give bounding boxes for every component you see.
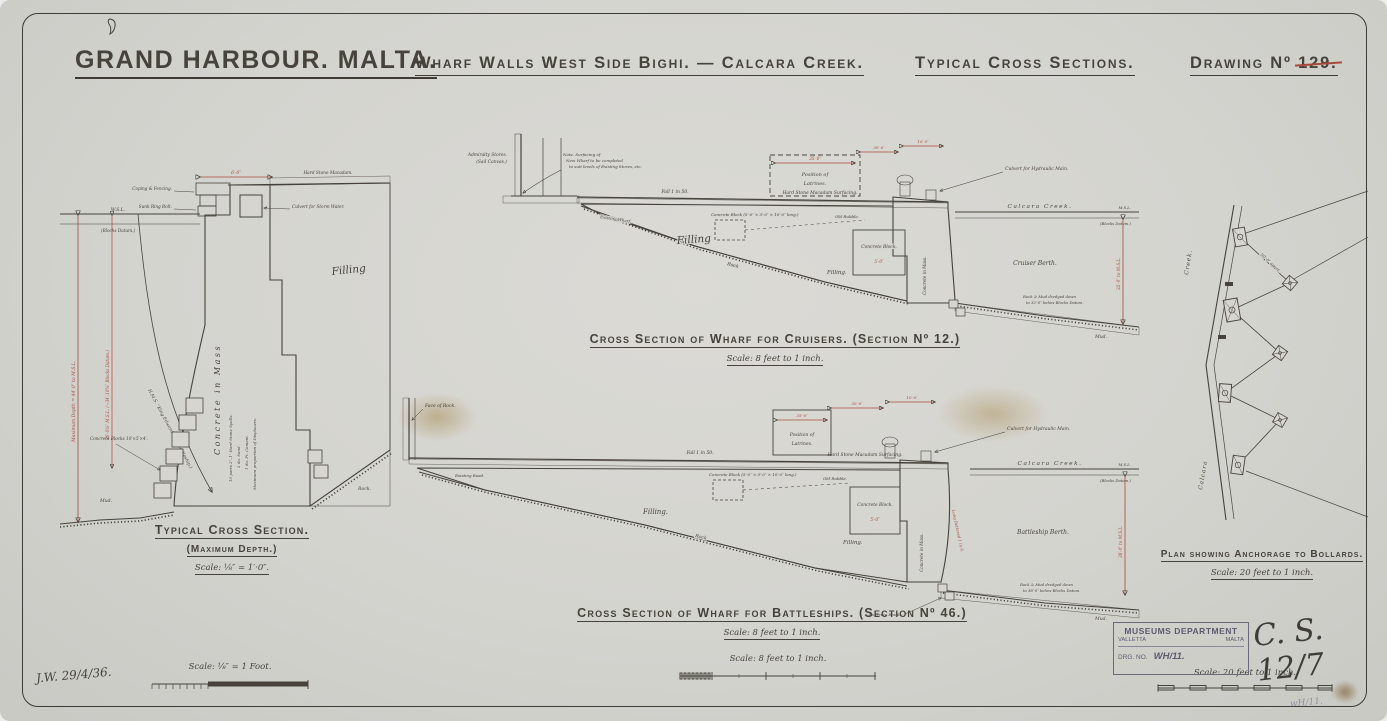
battleships-latrines-dim: 35′·0″ [796,413,808,418]
battleships-msl-label: M.S.L. [1118,462,1132,467]
battleships-wall-vert: Concrete in Mass. [919,533,924,572]
battleships-latrines-label1: Position of [789,432,816,438]
plan-bollard-2 [1223,298,1241,322]
typical-culvert-label: Culvert for Storm Water. [292,204,344,209]
cruisers-old-rubble: Old Rubble. [835,214,859,219]
plan-caption-text: Plan showing Anchorage to Bollards. [1161,549,1364,562]
battleships-berth-label: Battleship Berth. [1016,529,1069,536]
typical-datum-label: (Blocks Datum.) [101,228,135,233]
typical-scale-text: Scale: ⅛″ = 1′·0″. [195,563,269,575]
stamp-drg-value: WH/11. [1154,651,1185,662]
cruisers-dredge1: Rock & Mud dredged down [1022,294,1077,299]
typical-rock-label: Rock. [357,486,372,492]
scalebar-middle [678,668,878,682]
cruisers-wall-vert: Concrete in Mass. [922,256,927,295]
battleships-fall-label: Fall 1 in 50. [685,450,714,456]
cruisers-scale-text: Scale: 8 feet to 1 inch. [727,354,824,366]
typical-ringbolt-label: Sunk Ring Bolt. [139,204,172,209]
battleships-dim-10: 10′·0″ [906,395,918,400]
typical-mid-dim: 36′·0⅜″ M.S.L. (−34′·10⅜″ Blocks Datum.) [105,350,110,440]
cruisers-berth-label: Cruiser Berth. [1013,260,1057,267]
cruisers-block-dim: 5′·0″ [874,259,884,264]
plan-bollard-3 [1218,384,1231,403]
cruisers-culvert-label: Culvert for Hydraulic Main. [1005,166,1069,172]
scalebar-right [1156,682,1334,694]
battleships-geometry: Face of Rock. Existing Road. Fall 1 in 5… [403,395,1139,622]
drawing-number: Drawing Nº 129. [1190,54,1338,76]
plan-creek-label: Creek. [1184,249,1194,275]
cruisers-datum-label: (Blocks Datum.) [1100,221,1131,226]
battleships-caption-text: Cross Section of Wharf for Battleships. … [577,606,967,622]
cruisers-caption-text: Cross Section of Wharf for Cruisers. (Se… [590,332,961,348]
battleships-mud-label: Mud. [1094,616,1108,622]
cruisers-macadam-label: Hard Stone Macadam Surfacing. [781,190,858,196]
typical-geometry: 6′·0″ Hard Stone Macadam. Filling Coping… [60,170,392,527]
scalebar-left [150,676,310,690]
battleships-culvert [921,451,931,461]
cruisers-fall-label: Fall 1 in 50. [660,189,689,195]
drawing-number-value: 129. [1298,54,1337,73]
subtitle-location: Wharf Walls West Side Bighi. — Calcara C… [415,54,864,76]
typical-caption: Typical Cross Section. (Maximum Depth.) … [122,521,342,575]
battleships-dim-30: 30′·0″ [851,401,863,406]
battleships-scale-text: Scale: 8 feet to 1 inch. [724,628,821,640]
stamp-location-row: VALLETTA MALTA [1118,637,1244,647]
stamp-country: MALTA [1226,637,1244,643]
reference-number: C. S. 12/7 [1252,605,1387,688]
subtitle-sections: Typical Cross Sections. [915,54,1135,76]
stamp-department: MUSEUMS DEPARTMENT [1118,626,1244,636]
cruisers-stores-label1: Admiralty Stores. [467,153,507,158]
stamp-drg-label: DRG. NO. [1118,654,1148,661]
battleships-dredge1: Rock & Mud dredged down [1019,582,1074,587]
cruisers-latrines-label1: Position of [801,172,830,178]
plan-caption: Plan showing Anchorage to Bollards. Scal… [1152,544,1372,580]
battleships-dredge2: to 38′·0″ below Blocks Datum. [1023,588,1081,593]
battleships-latrines-label2: Latrines. [791,441,813,447]
cruisers-mud-label: Mud. [1094,334,1108,340]
battleships-caption: Cross Section of Wharf for Battleships. … [522,604,1022,640]
battleships-culvert-label: Culvert for Hydraulic Main. [1007,426,1071,432]
cruisers-bollard [897,175,913,196]
battleships-batter-label: Long Battered 1 in 8. [951,508,965,552]
cruisers-depth-dim: 32′·0″ to M.S.L. [1116,258,1121,291]
scalebar-left-label: Scale: ⅛″ = 1 Foot. [150,662,310,672]
typical-filling-label: Filling [330,262,367,278]
plan-scale-text: Scale: 20 feet to 1 inch. [1211,568,1313,580]
cruisers-dim-30: 30′·0″ [873,145,885,150]
cruisers-note-line1: Note. Surfacing of [562,152,602,157]
typical-mud-label: Mud. [99,498,113,504]
battleships-face-rock-label: Face of Rock. [424,403,456,409]
signature: J.W. 29/4/36. [36,665,113,686]
typical-spec2: 2 do. Sand. [236,445,241,469]
typical-spec1: 10 parts 2″–1″ Hard Stone Spalls. [228,414,233,482]
cruisers-stores-label2: (Sail Canvas.) [476,160,507,165]
cruisers-section-drawing: Admiralty Stores. (Sail Canvas.) Note. S… [395,130,1143,345]
typical-depth-dim: Maximum Depth = 44′·0″ to M.S.L. [71,360,77,443]
drawing-number-label: Drawing Nº [1190,54,1298,72]
battleships-filling2: Filling. [842,540,863,546]
typical-top-dim: 6′·0″ [231,170,241,176]
cruisers-block-note: Concrete Block (5′·0″ × 5′·0″ × 10′·0″ l… [711,212,799,217]
typical-caption-text: Typical Cross Section. [155,523,309,539]
battleships-depth-dim: 38′·0″ to M.S.L. [1118,526,1123,559]
battleships-caption-section: (Section Nº 46.) [859,606,967,620]
cruisers-creek-label: Calcara Creek. [1008,204,1073,210]
cruisers-latrines-dim: 35′·0″ [809,156,821,161]
battleships-filling1: Filling. [642,508,668,516]
cruisers-existing-label: Existing Wharf. [599,214,632,224]
cruisers-rock-slope: Rock [726,261,740,270]
typical-spec3: 1 do. Pt. Cement. [244,435,249,470]
cruisers-msl-label: M.S.L. [1118,205,1132,210]
cruisers-caption-main: Cross Section of Wharf for Cruisers. [590,332,848,346]
cruisers-latrines-label2: Latrines. [803,181,827,187]
battleships-macadam-label: Hard Stone Macadam Surfacing. [826,452,903,458]
plan-bollard-4 [1231,455,1245,474]
cruisers-caption-section: (Section Nº 12.) [853,332,961,346]
battleships-caption-main: Cross Section of Wharf for Battleships. [577,606,854,620]
cruisers-geometry: Admiralty Stores. (Sail Canvas.) Note. S… [467,134,1139,340]
cruisers-note-line3: to suit levels of Existing Stores, etc. [569,164,642,169]
battleships-block-note: Concrete Block (5′·0″ × 5′·0″ × 10′·0″ l… [709,472,797,477]
cruisers-concrete-block-label: Concrete Block. [861,245,897,250]
battleships-block-dim: 5′·0″ [870,517,880,522]
plan-calcara-label: Calcara [1198,460,1209,490]
drawing-sheet: GRAND HARBOUR. MALTA. Wharf Walls West S… [0,0,1387,721]
page-title: GRAND HARBOUR. MALTA. [75,46,437,79]
typical-section-drawing: 6′·0″ Hard Stone Macadam. Filling Coping… [60,150,395,570]
typical-subcaption-text: (Maximum Depth.) [187,544,278,557]
plan-tie-dim: 50′·0″ apart. [1259,252,1281,273]
battleships-old-rubble: Old Rubble. [823,476,847,481]
bollard-plan-drawing: 50′·0″ apart. [1168,185,1373,535]
ink-mark [104,16,124,38]
typical-blocks-label: Concrete Blocks 10′×5′×4′. [90,436,148,441]
typical-wsl-label: W.S.L. [111,207,126,213]
typical-macadam-label: Hard Stone Macadam. [302,171,352,176]
typical-coping-label: Coping & Fencing. [132,186,172,191]
plan-geometry: 50′·0″ apart. [1184,191,1368,520]
cruisers-note-line2: New Wharf to be completed [565,158,623,163]
stamp-drg-row: DRG. NO. WH/11. [1118,651,1244,662]
typical-concrete-label: Concrete in Mass [213,344,222,455]
pencil-note: wH/11. [1290,697,1324,710]
cruisers-dim-10: 10′·0″ [917,139,929,144]
museum-stamp: MUSEUMS DEPARTMENT VALLETTA MALTA DRG. N… [1113,622,1249,675]
battleships-creek-label: Calcara Creek. [1018,461,1083,467]
battleships-concrete-block-label: Concrete Block. [857,503,893,508]
cruisers-dredge2: to 32′·0″ below Blocks Datum. [1026,300,1084,305]
battleships-datum-label: (Blocks Datum.) [1100,478,1131,483]
plan-anchor-2 [1272,345,1287,360]
cruisers-culvert [926,190,936,200]
scalebar-middle-label: Scale: 8 feet to 1 inch. [678,654,878,664]
stamp-city: VALLETTA [1118,637,1146,643]
battleships-existing-label: Existing Road. [454,473,484,478]
stain-corner [1332,681,1358,703]
cruisers-filling-big: Filling [675,233,711,247]
battleships-section-drawing: Face of Rock. Existing Road. Fall 1 in 5… [395,390,1143,622]
cruisers-caption: Cross Section of Wharf for Cruisers. (Se… [545,330,1005,366]
battleships-rock-slope: Rock [694,533,708,542]
typical-spec4: Maximum proportion of Displacers. [252,418,257,491]
cruisers-filling2: Filling. [826,270,847,276]
plan-bollard-1 [1233,227,1248,247]
